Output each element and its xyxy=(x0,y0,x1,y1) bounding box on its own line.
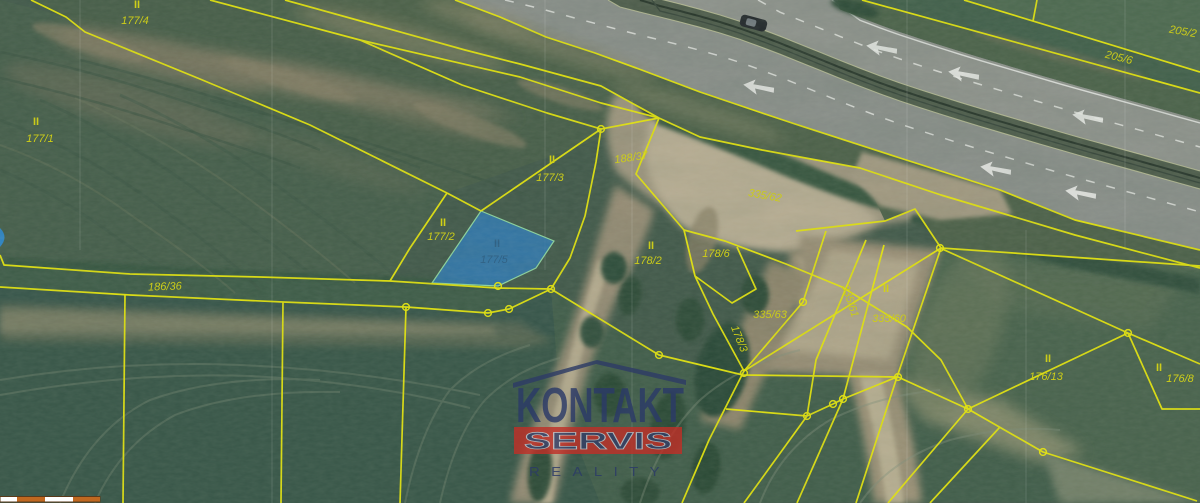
svg-text:SERVIS: SERVIS xyxy=(524,428,672,455)
svg-text:REALITY: REALITY xyxy=(529,464,671,479)
svg-text:KONTAKT: KONTAKT xyxy=(516,379,684,433)
